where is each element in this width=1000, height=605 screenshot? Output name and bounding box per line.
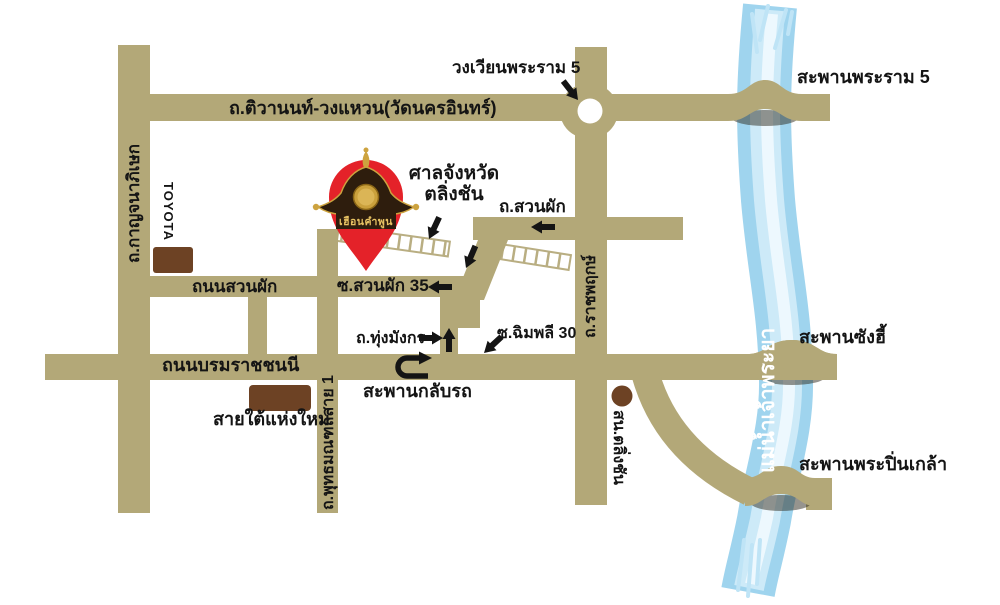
police-station-dot (612, 386, 633, 407)
label-thung-mangkon: ถ.ทุ่งมังกร (356, 330, 425, 348)
label-soi-suanphak35: ซ.สวนผัก 35 (337, 277, 429, 296)
logo-finial-ball (364, 148, 369, 153)
label-road-ratchaphruek: ถ.ราชพฤกษ์ (582, 255, 600, 338)
label-saphan-sang-hi: สะพานซังฮี้ (799, 328, 886, 348)
label-sn-taling-chan: สน.ตลิ่งชัน (609, 410, 627, 485)
label-sai-tai: สายใต้แห่งใหม่ (213, 410, 330, 430)
label-toyota: TOYOTA (161, 182, 175, 241)
road-pinklao-ramp (646, 376, 750, 492)
label-road-tiwanon: ถ.ติวานนท์-วงแหวน(วัดนครอินทร์) (229, 99, 497, 119)
label-wongwian-rama5: วงเวียนพระราม 5 (452, 59, 580, 78)
road-suanphak (473, 217, 683, 240)
logo-coin-inner (358, 189, 375, 206)
label-saphan-pinklao: สะพานพระปิ่นเกล้า (799, 455, 947, 475)
label-road-phutthamonthon1: ถ.พุทธมณฑลสาย 1 (320, 375, 338, 510)
label-road-kanchanaphisek: ถ.กาญจนาภิเษก (125, 144, 144, 263)
label-soi-chimphli30: ซ.ฉิมพลี 30 (497, 325, 576, 343)
logo-eave-curl-left (313, 204, 319, 210)
label-saphan-rama5: สะพานพระราม 5 (797, 68, 930, 88)
label-saphan-klap-rot: สะพานกลับรถ (363, 382, 472, 402)
label-court: ศาลจังหวัด ตลิ่งชัน (406, 164, 502, 206)
label-court-line2: ตลิ่งชัน (406, 185, 502, 206)
toyota-building-block (153, 247, 193, 273)
southern-bus-terminal-block (249, 385, 311, 411)
roundabout-circle (578, 99, 603, 124)
label-thanon-suanphak: ถนนสวนผัก (192, 278, 277, 297)
road-connector-soi (248, 297, 267, 355)
label-road-borommaratchachonnani: ถนนบรมราชชนนี (162, 356, 299, 376)
label-chao-phraya-river: แม่น้ำเจ้าพระยา (756, 328, 779, 473)
road-soi-block (440, 292, 480, 328)
logo-text: เฮือนคำพูน (334, 213, 398, 230)
label-road-suanphak: ถ.สวนผัก (499, 198, 566, 217)
label-court-line1: ศาลจังหวัด (406, 164, 502, 185)
map-canvas: วงเวียนพระราม 5 สะพานพระราม 5 ถ.ติวานนท์… (0, 0, 1000, 605)
map-graphics (0, 0, 1000, 605)
road-slant-suanphak35 (454, 240, 508, 300)
